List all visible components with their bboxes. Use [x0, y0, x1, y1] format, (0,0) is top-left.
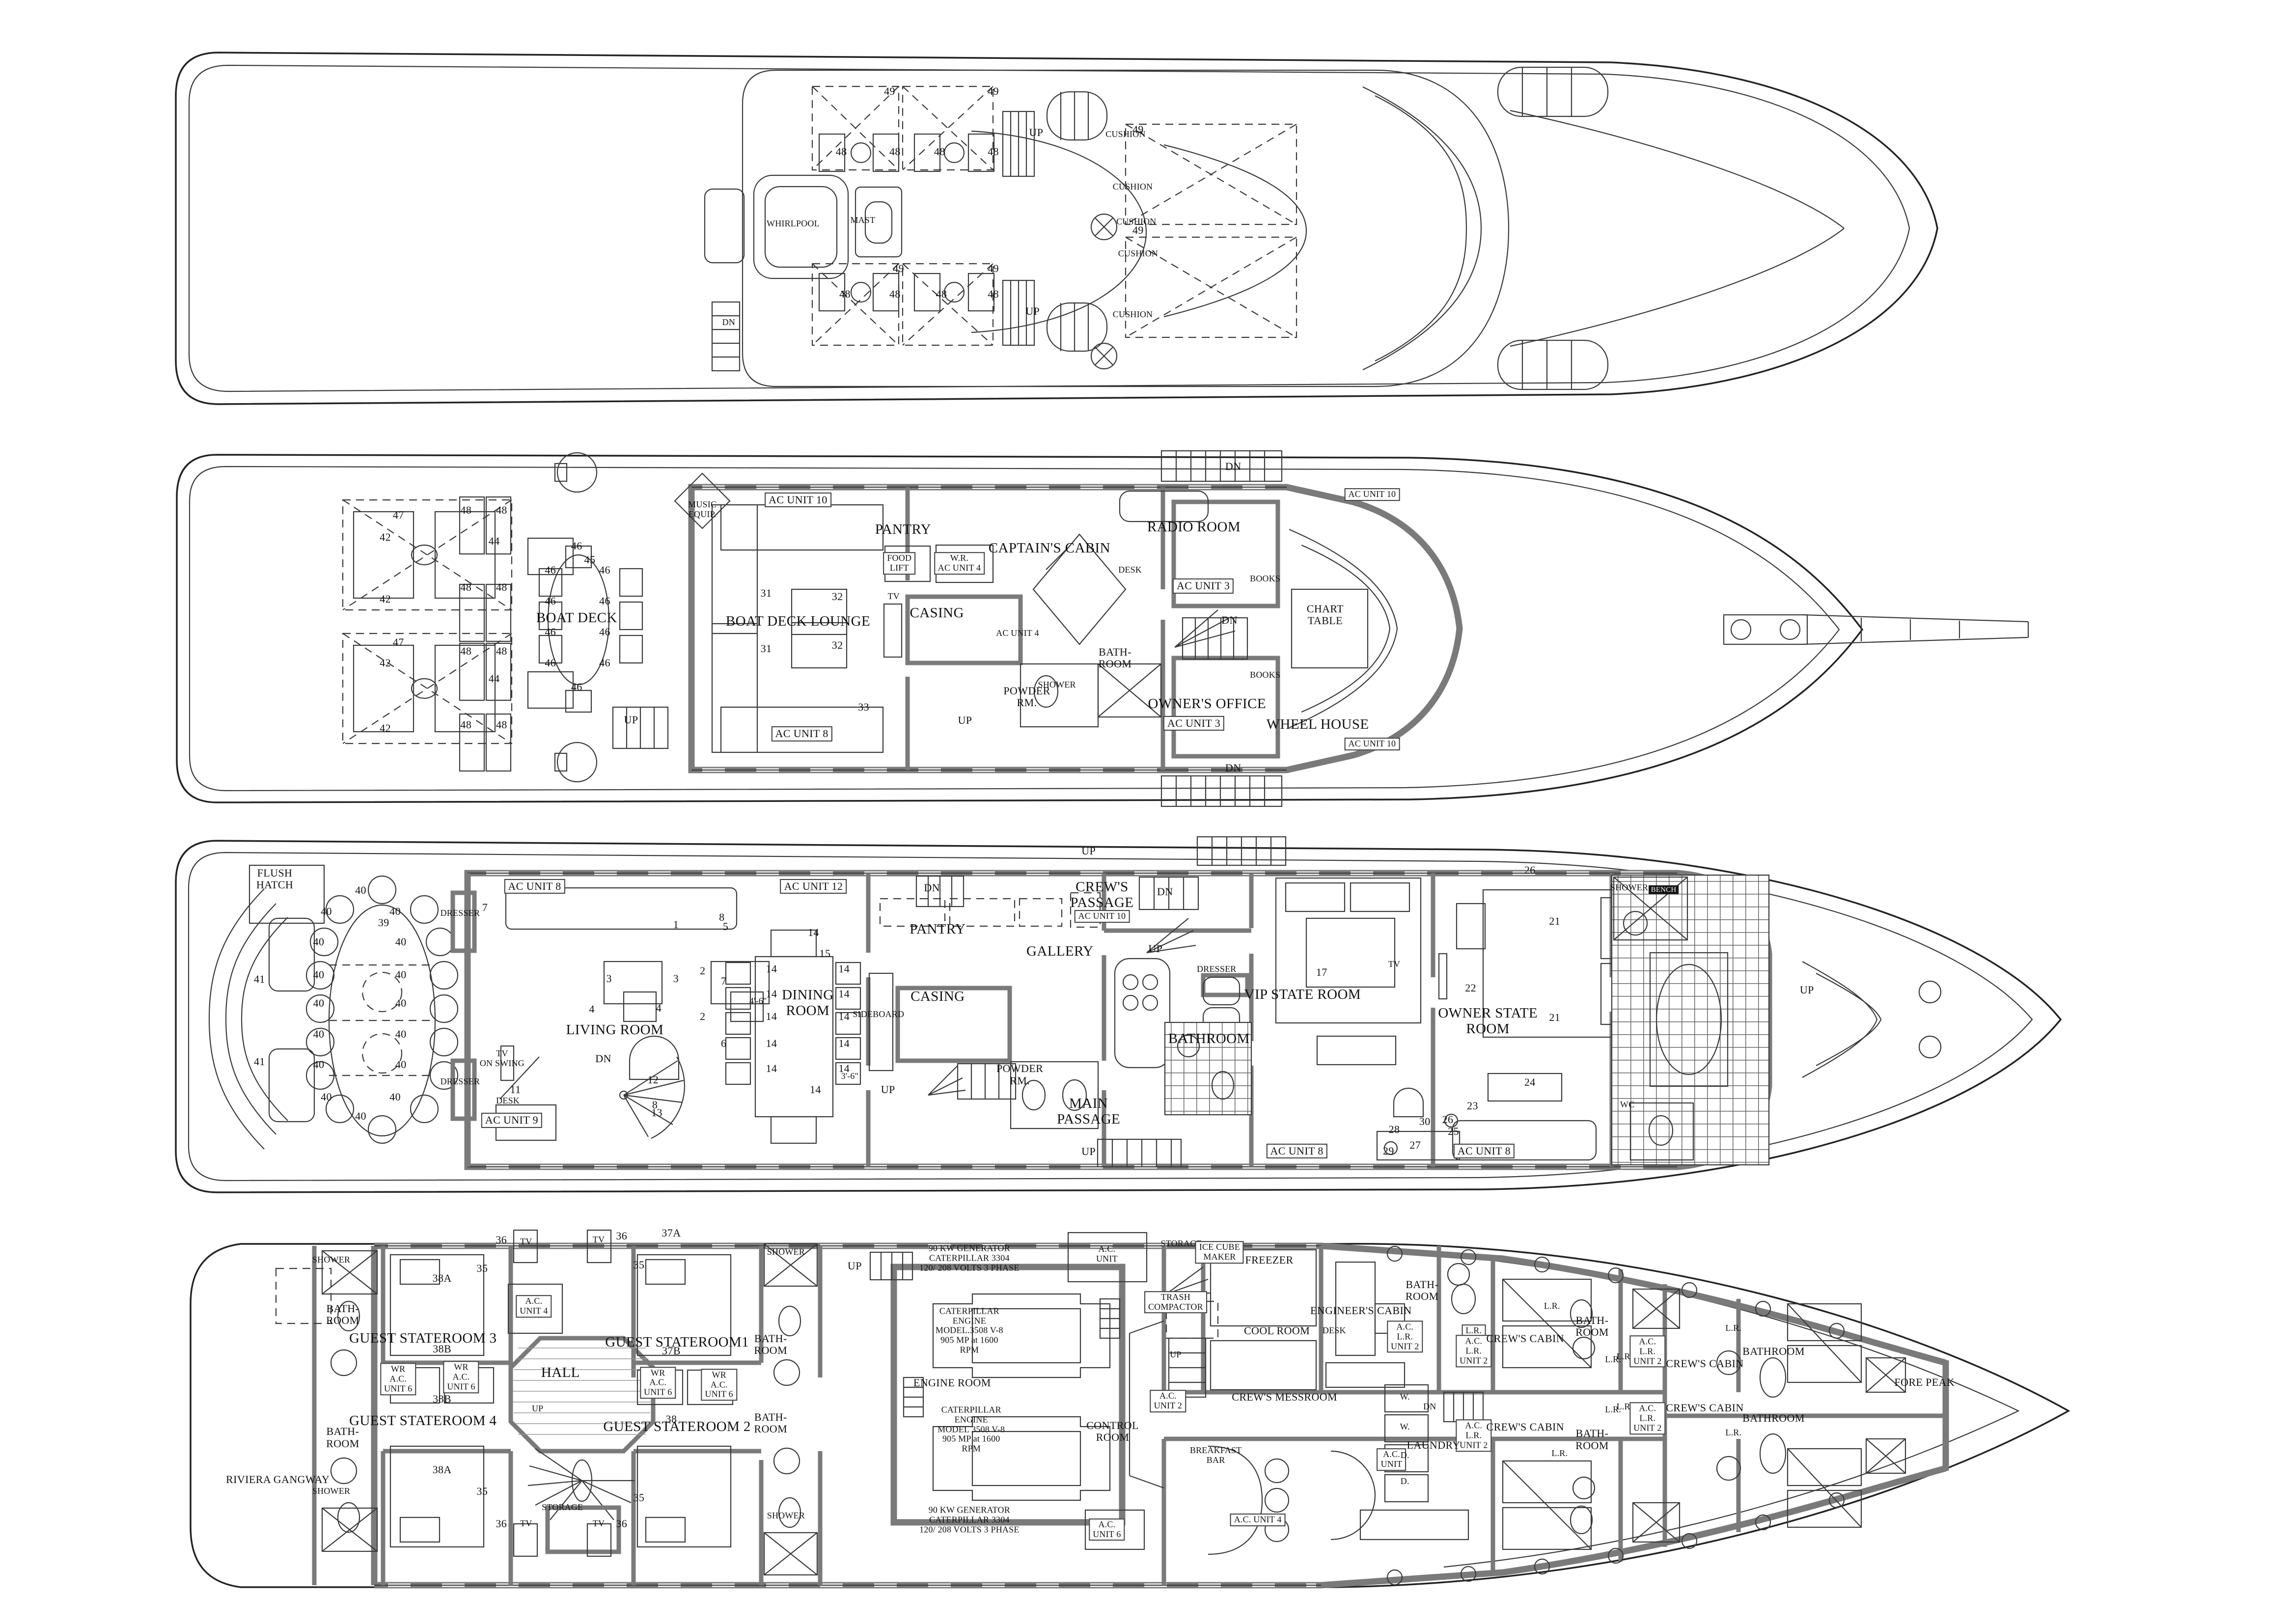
plan-label: AC UNIT 3: [1173, 578, 1234, 593]
plan-label: A.C. L.R. UNIT 2: [1629, 1403, 1665, 1434]
plan-label: BOOKS: [1250, 574, 1280, 584]
plan-label: 45: [584, 554, 596, 566]
plan-label: LIVING ROOM: [566, 1022, 664, 1038]
plan-label: 39: [378, 917, 389, 929]
plan-label: TV ON SWING: [480, 1049, 524, 1069]
plan-label: 30: [1419, 1116, 1431, 1128]
plan-label: 48: [496, 719, 507, 731]
plan-label: 40: [313, 997, 325, 1009]
plan-label: GALLERY: [1026, 944, 1094, 960]
plan-label: 14: [810, 1084, 821, 1096]
plan-label: UP: [1800, 984, 1814, 996]
plan-label: GUEST STATEROOM 3: [349, 1331, 496, 1347]
plan-label: DESK: [1118, 565, 1142, 575]
plan-label: WHIRLPOOL: [767, 219, 820, 229]
plan-label: ENGINE ROOM: [913, 1377, 991, 1389]
plan-label: UP: [1170, 1350, 1181, 1360]
plan-label: BATHROOM: [1168, 1031, 1250, 1047]
plan-label: 2: [700, 965, 705, 977]
plan-label: RIVIERA GANGWAY: [226, 1474, 330, 1486]
plan-label: 14: [838, 1038, 850, 1049]
plan-label: UP: [1025, 305, 1040, 317]
plan-label: A.C. L.R. UNIT 2: [1629, 1335, 1665, 1367]
plan-label: L.R.: [1725, 1323, 1741, 1333]
plan-label: 40: [389, 906, 401, 917]
plan-label: 46: [545, 626, 556, 638]
plan-label: 35: [476, 1486, 488, 1497]
plan-label: 37A: [662, 1227, 681, 1239]
plan-label: HALL: [541, 1365, 580, 1381]
plan-label: 14: [838, 963, 850, 975]
plan-label: 40: [313, 1059, 325, 1071]
plan-label: 35: [633, 1259, 644, 1271]
plan-label: 14: [766, 1063, 777, 1074]
plan-label: 46: [599, 626, 610, 638]
plan-label: DN: [1423, 1402, 1436, 1412]
plan-label: CUSHION: [1113, 310, 1153, 320]
plan-label: WC: [1620, 1100, 1634, 1110]
plan-label: 90 KW GENERATOR CATERPILLAR 3304 120/ 20…: [919, 1244, 1019, 1273]
plan-label: CUSHION: [1118, 249, 1158, 259]
plan-label: TV: [593, 1235, 605, 1245]
plan-label: A.C. L.R. UNIT 2: [1387, 1321, 1423, 1352]
plan-label: DESK: [496, 1096, 520, 1106]
plan-label: UP: [532, 1404, 543, 1414]
plan-label: 46: [545, 595, 556, 607]
plan-label: FREEZER: [1245, 1254, 1293, 1266]
plan-label: 46: [545, 657, 556, 669]
plan-label: 40: [395, 1059, 407, 1071]
plan-label: 7: [721, 975, 726, 987]
plan-label: WR A.C. UNIT 6: [380, 1363, 416, 1395]
plan-label: 13: [651, 1107, 662, 1119]
plan-label: ENGINEER'S CABIN: [1310, 1305, 1412, 1317]
plan-label: 1: [673, 919, 679, 931]
plan-label: 26: [1442, 1114, 1454, 1126]
plan-label: 14: [838, 988, 850, 1000]
plan-label: CREW'S MESSROOM: [1232, 1391, 1337, 1403]
plan-label: VIP STATE ROOM: [1244, 987, 1361, 1003]
plan-label: UP: [1081, 1146, 1096, 1157]
plan-label: 90 KW GENERATOR CATERPILLAR 3304 120/ 20…: [919, 1506, 1019, 1535]
plan-label: DRESSER: [441, 908, 480, 918]
plan-label: 14: [838, 1011, 850, 1022]
plan-label: 42: [380, 722, 391, 734]
plan-label: TRASH COMPACTOR: [1144, 1291, 1207, 1314]
plan-label: A.C. UNIT 4: [516, 1295, 552, 1318]
plan-label: 48: [889, 146, 901, 158]
plan-label: 36: [496, 1234, 507, 1246]
plan-label: 14: [766, 988, 777, 1000]
plan-label: CREW'S CABIN: [1487, 1421, 1565, 1433]
plan-label: A.C. UNIT 4: [1230, 1514, 1286, 1526]
plan-label: BATH- ROOM: [1575, 1428, 1609, 1451]
yacht-deck-plan-sheet: { "decks": [ { "id": "sun-deck", "labels…: [0, 0, 2289, 1624]
plan-label: BENCH: [1649, 885, 1679, 894]
plan-label: 32: [832, 639, 843, 651]
plan-label: 48: [496, 504, 507, 516]
plan-label: 47: [393, 509, 404, 521]
plan-label: 4: [589, 1003, 595, 1015]
plan-label: 31: [761, 587, 772, 599]
plan-label: 40: [313, 936, 325, 948]
plan-label: 6: [721, 1038, 726, 1049]
plan-label: LAUNDRY: [1406, 1439, 1460, 1451]
plan-label: 4: [656, 1002, 662, 1014]
plan-label: MUSIC EQUIP.: [688, 500, 717, 520]
plan-label: DRESSER: [441, 1077, 480, 1087]
plan-label: 36: [616, 1230, 627, 1242]
plan-label: CASING: [910, 989, 965, 1005]
plan-label: 40: [395, 1028, 407, 1040]
plan-label: 25: [1448, 1126, 1459, 1137]
plan-label: 28: [1389, 1124, 1400, 1135]
plan-label: 22: [1465, 982, 1476, 994]
plan-label: BREAKFAST BAR: [1190, 1446, 1242, 1465]
plan-label: CHART TABLE: [1307, 603, 1344, 627]
plan-label: SHOWER: [312, 1255, 350, 1265]
plan-label: 48: [934, 146, 945, 158]
plan-label: 48: [836, 146, 847, 158]
plan-label: TV: [520, 1237, 532, 1247]
plan-label: 15: [819, 948, 830, 960]
plan-label: A.C. UNIT 2: [1150, 1390, 1186, 1412]
plan-label: 48: [460, 581, 471, 593]
plan-label: L.R.: [1551, 1449, 1568, 1459]
plan-label: CREW'S PASSAGE: [1070, 880, 1133, 911]
plan-label: BOAT DECK: [536, 610, 617, 626]
plan-label: 46: [599, 564, 610, 576]
plan-label: DN: [1225, 461, 1241, 472]
plan-label: 14: [766, 963, 777, 975]
plan-label: DN: [924, 882, 940, 894]
plan-label: SHOWER: [767, 1247, 805, 1257]
plan-label: MAIN PASSAGE: [1057, 1096, 1120, 1128]
plan-label: WHEEL HOUSE: [1267, 717, 1369, 733]
plan-label: BATH- ROOM: [326, 1426, 359, 1449]
plan-label: 40: [355, 884, 366, 896]
plan-label: AC UNIT 10: [1075, 910, 1130, 923]
plan-label: CASING: [910, 606, 964, 621]
plan-label: WR A.C. UNIT 6: [640, 1367, 676, 1399]
plan-label: MAST: [850, 216, 875, 225]
plan-label: DRESSER: [1197, 964, 1236, 974]
plan-label: 27: [1409, 1139, 1421, 1151]
plan-label: ICE CUBE MAKER: [1195, 1241, 1244, 1264]
plan-label: FLUSH HATCH: [256, 867, 293, 891]
plan-label: SHOWER: [1610, 883, 1648, 893]
plan-label: 40: [321, 906, 332, 917]
plan-label: 38A: [433, 1464, 452, 1476]
plan-label: DESK: [1323, 1326, 1346, 1336]
plan-label: 23: [1467, 1100, 1478, 1112]
plan-label: 40: [355, 1110, 366, 1122]
plan-label: 14: [808, 927, 819, 938]
plan-label: OWNER STATE ROOM: [1438, 1006, 1538, 1037]
plan-label: AC UNIT 10: [1345, 738, 1400, 750]
plan-label: TV: [593, 1519, 605, 1529]
plan-label: 49: [1132, 224, 1144, 236]
plan-label: FOOD LIFT: [883, 552, 915, 575]
plan-label: BATHROOM: [1742, 1412, 1805, 1424]
plan-label: AC UNIT 8: [771, 726, 832, 741]
plan-label: D.: [1401, 1451, 1409, 1460]
plan-label: UP: [848, 1260, 862, 1272]
plan-label: CUSHION: [1113, 182, 1153, 192]
plan-label: 49: [884, 85, 895, 97]
plan-label: 12: [647, 1074, 659, 1086]
plan-label: 2: [700, 1011, 705, 1022]
plan-label: 40: [313, 969, 325, 981]
plan-label: 33: [858, 701, 869, 713]
plan-label: DINING ROOM: [782, 988, 834, 1019]
plan-label: 46: [571, 540, 582, 552]
plan-label: 32: [832, 591, 843, 603]
plan-label: 21: [1549, 915, 1560, 927]
plan-label: 7: [482, 902, 488, 913]
plan-label: 17: [1316, 966, 1327, 978]
plan-label: CREW'S CABIN: [1487, 1333, 1565, 1345]
plan-label: 36: [496, 1518, 507, 1530]
plan-label: AC UNIT 3: [1163, 716, 1224, 731]
plan-label: DN: [1221, 614, 1238, 626]
plan-label: 35: [476, 1263, 488, 1274]
plan-label: 40: [313, 1028, 325, 1040]
plan-label: TV: [1388, 960, 1400, 969]
plan-label: 47: [393, 636, 404, 648]
plan-label: FORE PEAK: [1894, 1376, 1955, 1388]
plan-label: 14: [766, 1011, 777, 1022]
plan-label: 48: [988, 146, 999, 158]
plan-label: CONTROL ROOM: [1086, 1420, 1139, 1443]
plan-label: 3'-6": [841, 1072, 859, 1081]
plan-label: DN: [722, 318, 735, 328]
plan-label: UP: [958, 715, 972, 726]
plan-label: 21: [1549, 1012, 1560, 1023]
plan-label: 48: [496, 645, 507, 657]
plan-label: 29: [1383, 1145, 1394, 1157]
plan-label: DN: [1225, 762, 1241, 774]
plan-label: 48: [839, 288, 851, 300]
plan-label: SHOWER: [312, 1486, 350, 1496]
plan-label: SIDEBOARD: [853, 1010, 904, 1019]
plan-label: CATERPILLAR ENGINE MODEL.3508 V-8 905 MP…: [936, 1306, 1003, 1355]
plan-label: 38A: [433, 1272, 452, 1284]
plan-label: GUEST STATEROOM 2: [603, 1419, 750, 1435]
plan-label: 3: [673, 973, 679, 985]
plan-label: 40: [395, 936, 407, 948]
plan-label: PANTRY: [910, 922, 965, 937]
plan-label: D.: [1401, 1477, 1409, 1486]
plan-label: RADIO ROOM: [1147, 520, 1241, 535]
plan-label: AC UNIT 9: [481, 1113, 542, 1128]
plan-label: AC UNIT 8: [1454, 1144, 1515, 1158]
plan-label: BATH- ROOM: [754, 1333, 787, 1356]
plan-label: 48: [988, 288, 999, 300]
plan-label: 41: [254, 1056, 265, 1068]
plan-label: 11: [510, 1084, 521, 1096]
plan-label: 46: [571, 681, 582, 693]
plan-label: 40: [321, 1091, 332, 1103]
plan-label: UP: [881, 1084, 895, 1096]
plan-label: CREW'S CABIN: [1666, 1358, 1744, 1370]
plan-label: BATH- ROOM: [1406, 1279, 1439, 1302]
plan-label: GUEST STATEROOM 4: [349, 1413, 496, 1429]
plan-label: 48: [496, 581, 507, 593]
plan-label: 48: [460, 645, 471, 657]
plan-label: AC UNIT 10: [1345, 488, 1400, 501]
plan-label: COOL ROOM: [1244, 1325, 1310, 1337]
plan-label: L.R.: [1605, 1355, 1621, 1365]
plan-label: AC UNIT 12: [780, 879, 847, 894]
plan-label: 38B: [433, 1343, 451, 1355]
plan-label: CAPTAIN'S CABIN: [989, 541, 1110, 556]
plan-label: 35: [633, 1491, 644, 1503]
plan-label: AC UNIT 10: [765, 493, 831, 507]
plan-label: UP: [1029, 127, 1043, 138]
plan-label: 41: [254, 973, 265, 985]
plan-label: 48: [936, 288, 947, 300]
plan-label: AC UNIT 8: [1267, 1144, 1327, 1158]
plan-label: BATH- ROOM: [1575, 1315, 1609, 1338]
plan-label: STORAGE: [542, 1503, 583, 1513]
plan-label: W.: [1400, 1392, 1410, 1402]
plan-label: 3: [607, 973, 612, 985]
plan-label: CATERPILLAR ENGINE MODEL 3508 V-8 905 MP…: [938, 1405, 1005, 1454]
plan-label: 31: [761, 643, 772, 655]
plan-label: AC UNIT 8: [504, 879, 565, 894]
sun-deck-plan: 494948484848UPCUSHION49CUSHIONCUSHION49C…: [162, 42, 1950, 415]
plan-label: 46: [599, 657, 610, 669]
plan-label: 49: [988, 263, 999, 275]
plan-label: TV: [888, 592, 900, 602]
plan-label: A.C. UNIT: [1096, 1244, 1118, 1264]
boat-deck-labels: 4742424742424848444848484844484846454646…: [162, 442, 2038, 815]
plan-label: POWDER RM.: [1003, 685, 1050, 709]
plan-label: BATH- ROOM: [1099, 646, 1132, 670]
plan-label: 49: [893, 263, 904, 275]
lower-deck-plan: RIVIERA GANGWAYSHOWERSHOWERBATH- ROOMBAT…: [167, 1215, 2077, 1616]
plan-label: 4'-6": [749, 996, 767, 1006]
plan-label: DN: [1157, 886, 1173, 898]
plan-label: 37B: [662, 1345, 681, 1357]
plan-label: CREW'S CABIN: [1666, 1402, 1744, 1414]
plan-label: W.R. AC UNIT 4: [934, 552, 985, 575]
plan-label: A.C. UNIT 6: [1089, 1518, 1125, 1541]
plan-label: OWNER'S OFFICE: [1148, 696, 1266, 712]
plan-label: POWDER RM.: [996, 1063, 1043, 1086]
plan-label: 49: [1132, 124, 1144, 136]
plan-label: L.R.: [1725, 1428, 1741, 1438]
plan-label: 24: [1524, 1076, 1536, 1088]
lower-deck-labels: RIVIERA GANGWAYSHOWERSHOWERBATH- ROOMBAT…: [167, 1215, 2077, 1616]
plan-label: UP: [1081, 845, 1096, 857]
plan-label: WR A.C. UNIT 6: [701, 1369, 737, 1401]
plan-label: 14: [766, 1038, 777, 1049]
plan-label: 42: [380, 593, 391, 605]
plan-label: 44: [489, 673, 500, 685]
plan-label: BATHROOM: [1742, 1346, 1805, 1357]
plan-label: 49: [988, 85, 999, 97]
plan-label: DN: [595, 1053, 611, 1065]
plan-label: 48: [889, 288, 901, 300]
plan-label: SHOWER: [767, 1511, 805, 1521]
plan-label: UP: [624, 714, 638, 726]
plan-label: 36: [616, 1518, 627, 1530]
plan-label: 46: [599, 595, 610, 607]
plan-label: UP: [1148, 943, 1162, 955]
plan-label: BOOKS: [1250, 670, 1280, 680]
plan-label: 40: [395, 997, 407, 1009]
plan-label: BATH- ROOM: [754, 1411, 787, 1435]
plan-label: 26: [1524, 864, 1536, 876]
plan-label: BOAT DECK LOUNGE: [726, 614, 870, 630]
plan-label: 42: [380, 657, 391, 669]
plan-label: 38B: [433, 1393, 451, 1405]
plan-label: 42: [380, 531, 391, 543]
plan-label: L.R.: [1605, 1405, 1621, 1415]
plan-label: 48: [460, 719, 471, 731]
sun-deck-labels: 494948484848UPCUSHION49CUSHIONCUSHION49C…: [162, 42, 1950, 415]
plan-label: 46: [545, 564, 556, 576]
plan-label: 44: [489, 535, 500, 547]
main-deck-labels: FLUSH HATCH40394040404040404140404040414…: [162, 830, 2072, 1211]
plan-label: 40: [389, 1091, 401, 1103]
plan-label: TV: [520, 1519, 532, 1529]
plan-label: BATH- ROOM: [326, 1303, 359, 1326]
plan-label: WR A.C. UNIT 6: [443, 1361, 479, 1393]
plan-label: W.: [1400, 1422, 1410, 1432]
main-deck-plan: FLUSH HATCH40394040404040404140404040414…: [162, 830, 2072, 1211]
plan-label: AC UNIT 4: [996, 629, 1039, 638]
plan-label: L.R.: [1544, 1301, 1560, 1311]
plan-label: PANTRY: [875, 522, 931, 538]
plan-label: 48: [460, 504, 471, 516]
plan-label: 40: [395, 969, 407, 981]
boat-deck-plan: 4742424742424848444848484844484846454646…: [162, 442, 2038, 815]
plan-label: 5: [723, 921, 728, 933]
